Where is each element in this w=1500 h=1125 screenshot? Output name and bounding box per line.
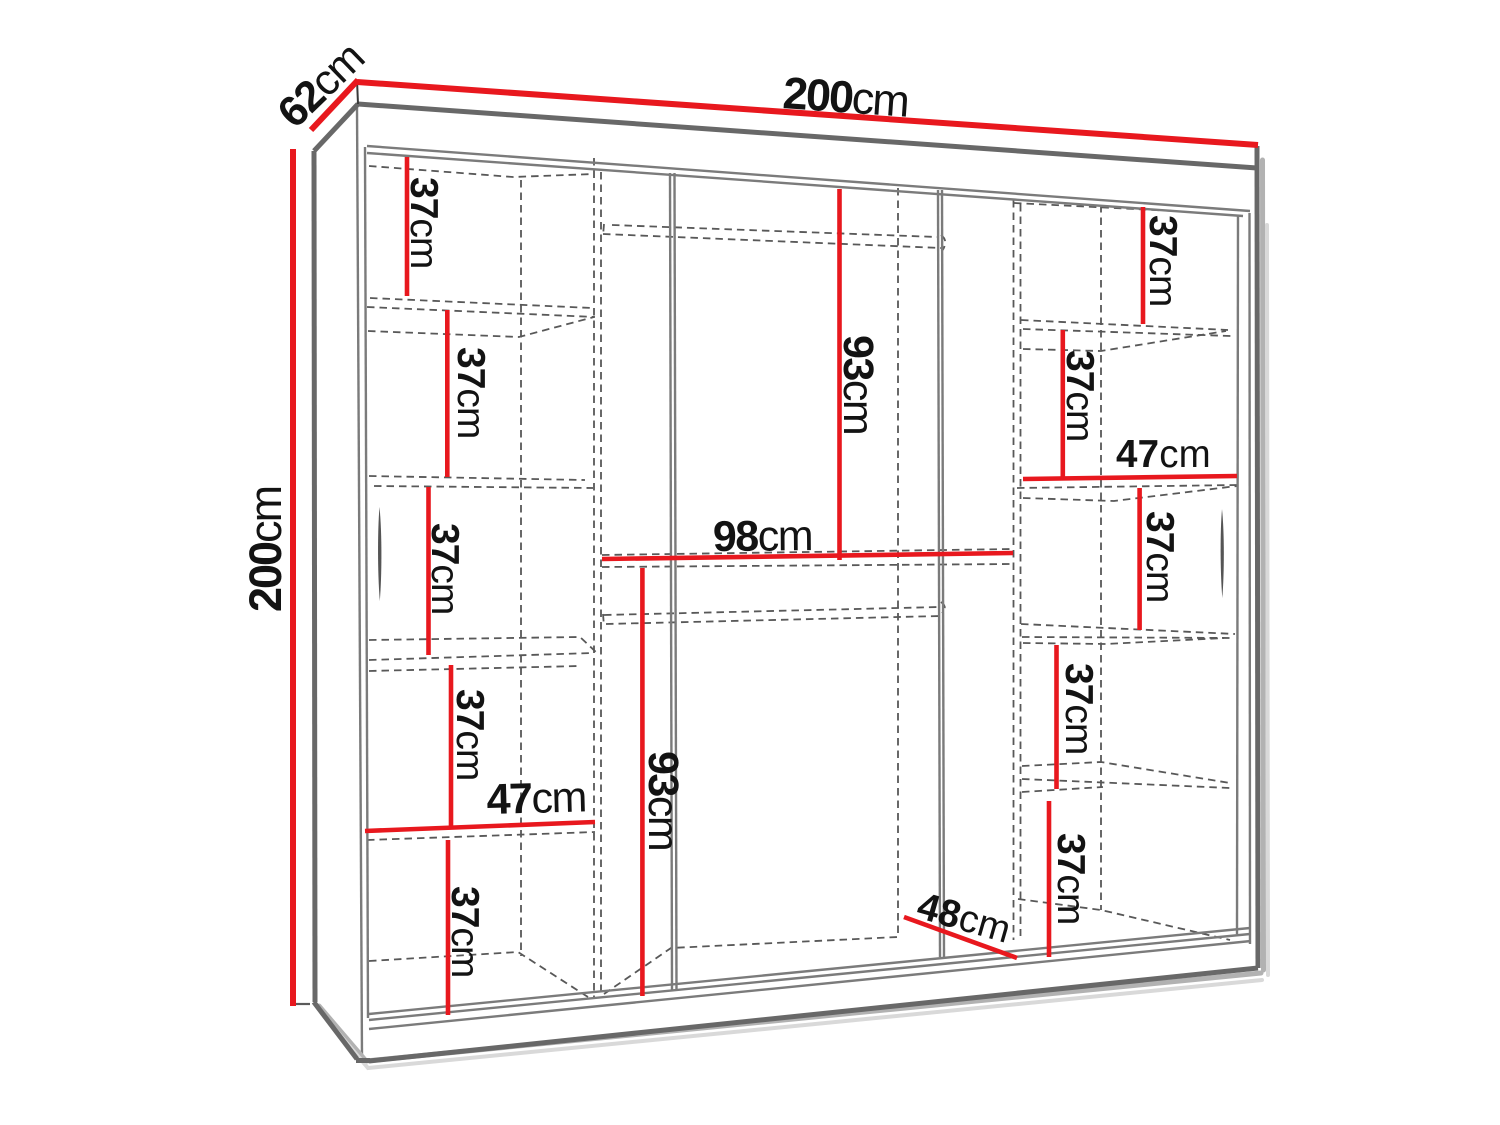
svg-text:37cm: 37cm [1058, 350, 1101, 441]
svg-text:98cm: 98cm [713, 512, 813, 561]
svg-text:200cm: 200cm [240, 487, 291, 612]
svg-text:47cm: 47cm [486, 773, 586, 824]
svg-text:200cm: 200cm [781, 67, 909, 127]
svg-text:37cm: 37cm [402, 177, 445, 268]
svg-text:37cm: 37cm [448, 689, 491, 780]
svg-text:37cm: 37cm [1049, 833, 1092, 924]
svg-text:93cm: 93cm [639, 751, 687, 850]
svg-text:93cm: 93cm [834, 335, 882, 434]
svg-text:37cm: 37cm [449, 347, 492, 438]
svg-text:37cm: 37cm [1057, 663, 1100, 754]
svg-text:47cm: 47cm [1116, 433, 1211, 476]
svg-text:37cm: 37cm [1138, 511, 1181, 602]
svg-text:37cm: 37cm [1141, 215, 1184, 306]
svg-text:37cm: 37cm [423, 523, 466, 614]
svg-text:37cm: 37cm [443, 886, 486, 977]
